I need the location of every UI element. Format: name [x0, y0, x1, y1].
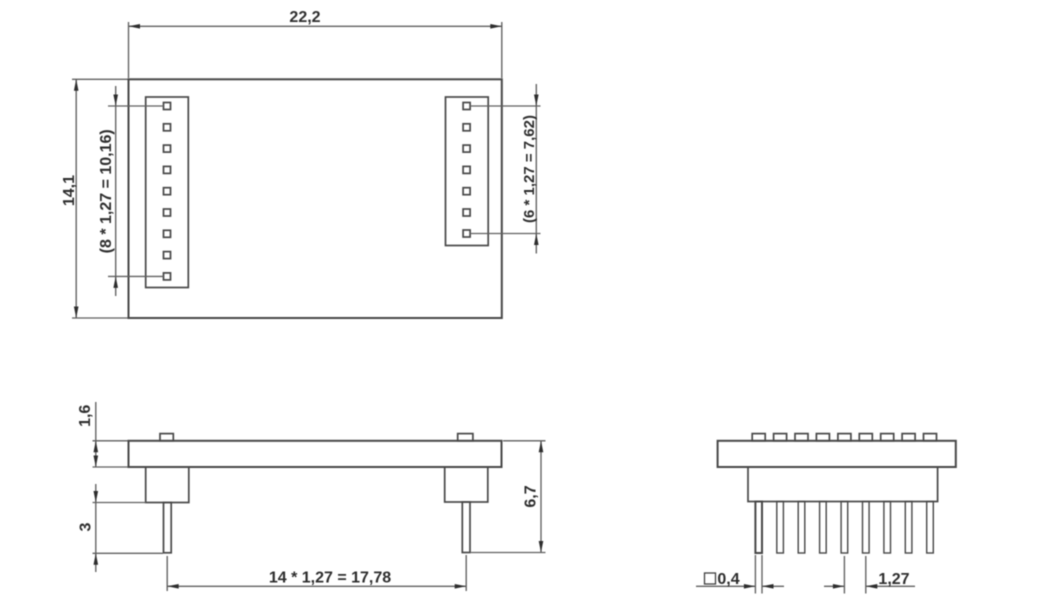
svg-text:14,1: 14,1	[61, 175, 78, 206]
svg-text:1,6: 1,6	[77, 405, 94, 427]
svg-text:6,7: 6,7	[523, 485, 540, 507]
svg-text:14 * 1,27 = 17,78: 14 * 1,27 = 17,78	[269, 570, 391, 587]
svg-text:22,2: 22,2	[289, 9, 320, 26]
svg-text:0,4: 0,4	[717, 571, 739, 588]
svg-text:1,27: 1,27	[878, 571, 909, 588]
svg-text:(8 * 1,27 = 10,16): (8 * 1,27 = 10,16)	[98, 129, 115, 253]
svg-text:(6 * 1,27 = 7,62): (6 * 1,27 = 7,62)	[521, 115, 538, 223]
svg-text:3: 3	[78, 522, 95, 531]
